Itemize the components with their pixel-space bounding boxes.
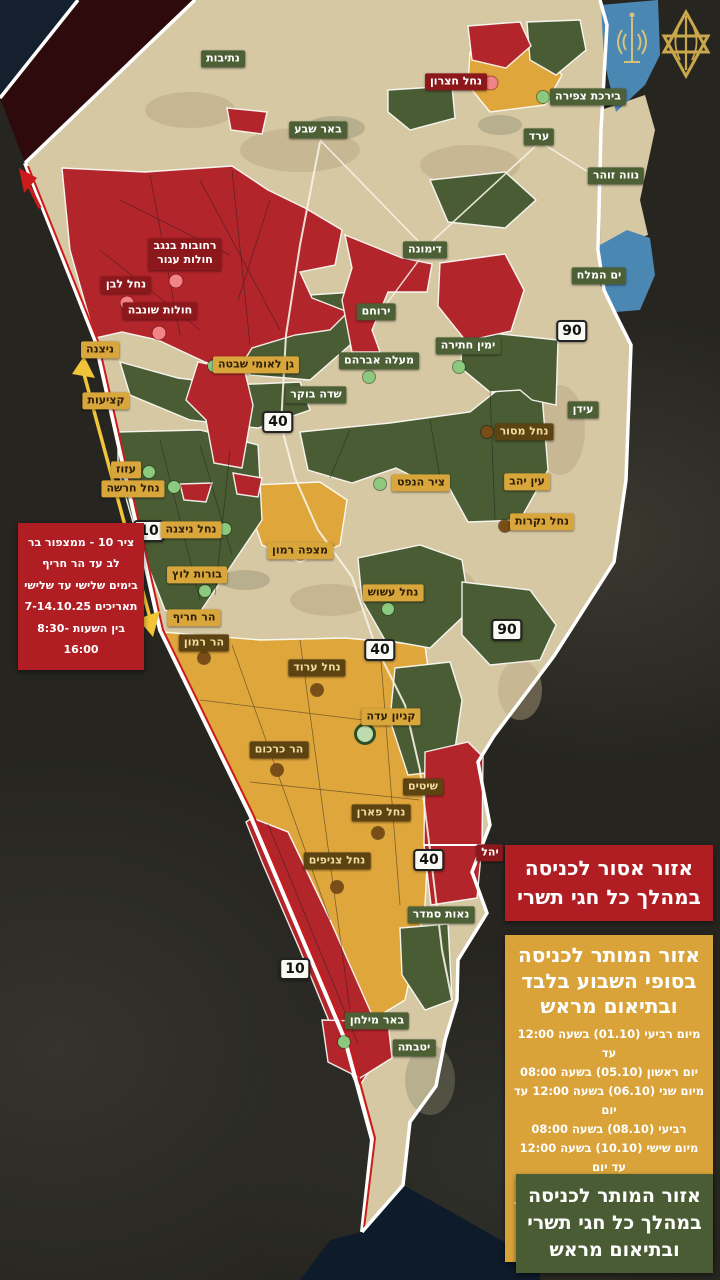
site-dot-green xyxy=(143,466,155,478)
label-ezuz: עזוז xyxy=(111,461,141,478)
label-nahal-lavan: נחל לבן xyxy=(101,276,151,293)
label-tzir-haneft: ציר הנפט xyxy=(392,474,450,491)
site-dot-brown xyxy=(311,684,323,696)
idf-logo-group xyxy=(606,4,714,86)
site-dot-green xyxy=(168,481,180,493)
label-kanyon-ada: קניון עדה xyxy=(361,708,420,725)
label-maale-avraham: מעלה אברהם xyxy=(339,352,419,369)
label-mitzpe-ramon: מצפה רמון xyxy=(267,542,333,559)
site-dot-pink xyxy=(153,327,166,340)
legend-weekend-line: מיום שני (06.10) בשעה 12:00 עד יום xyxy=(511,1082,707,1120)
label-shittim: שיטים xyxy=(403,778,443,795)
site-dot-brown xyxy=(271,764,283,776)
label-ein-yahav: עין יהב xyxy=(504,473,550,490)
red-sea xyxy=(300,1185,540,1280)
label-nahal-nitzana: נחל ניצנה xyxy=(161,521,222,538)
label-netivot: נתיבות xyxy=(201,50,245,67)
site-dot-green xyxy=(374,478,386,490)
legend-weekend-line: מיום שישי (10.10) בשעה 12:00 עד יום xyxy=(511,1139,707,1177)
label-har-harif: הר חריף xyxy=(168,609,221,626)
route-badge-90: 90 xyxy=(556,320,587,342)
notice-line: לב עד הר חריף xyxy=(22,553,140,574)
map-poster: 90 90 40 40 40 10 10 נתיבות באר שבע ערד … xyxy=(0,0,720,1280)
legend-allowed-title: אזור המותר לכניסה במהלך כל חגי תשרי ובתי… xyxy=(522,1183,707,1264)
label-shivta-national-park: גן לאומי שבטה xyxy=(213,356,299,373)
site-dot-green xyxy=(338,1036,350,1048)
label-beer-sheva: באר שבע xyxy=(289,121,347,138)
label-borot-lotz: בורות לוץ xyxy=(167,566,227,583)
label-har-karkom: הר כרכום xyxy=(250,741,309,758)
legend-allowed-box: אזור המותר לכניסה במהלך כל חגי תשרי ובתי… xyxy=(516,1174,713,1273)
label-rehovot-banegev-holot-agur: רחובות בנגב חולות עגור xyxy=(148,238,221,270)
site-dot-green xyxy=(382,603,394,615)
kanyon-ada-circle xyxy=(354,723,376,745)
route-badge-90: 90 xyxy=(491,619,522,641)
legend-weekend-line: יום ראשון (05.10) בשעה 08:00 xyxy=(511,1063,707,1082)
label-birkat-tzfira: בירכת צפירה xyxy=(550,88,626,105)
label-idan: עידן xyxy=(568,401,599,418)
label-holot-shunba: חולות שונבה xyxy=(123,302,197,319)
legend-weekend-line: רביעי (08.10) בשעה 08:00 xyxy=(511,1120,707,1139)
label-arad: ערד xyxy=(524,128,554,145)
route-badge-40: 40 xyxy=(413,849,444,871)
label-dead-sea: ים המלח xyxy=(572,267,626,284)
antenna-icon xyxy=(618,13,646,63)
site-dot-brown xyxy=(481,426,493,438)
route-badge-40: 40 xyxy=(364,639,395,661)
legend-weekend-line: מיום רביעי (01.10) בשעה 12:00 עד xyxy=(511,1025,707,1063)
label-nahal-nekarot: נחל נקרות xyxy=(510,513,574,530)
label-nahal-horsha: נחל חרשה xyxy=(101,480,164,497)
legend-weekend-title: אזור המותר לכניסה בסופי השבוע בלבד ובתיא… xyxy=(511,943,707,1020)
site-dot-brown xyxy=(331,881,343,893)
site-dot-brown xyxy=(198,652,210,664)
idf-emblem-icon xyxy=(664,12,708,76)
label-nahal-ashosh: נחל עשוש xyxy=(363,584,424,601)
label-neot-smadar: נאות סמדר xyxy=(408,906,475,923)
label-dimona: דימונה xyxy=(403,241,447,258)
label-yeruham: ירוחם xyxy=(357,303,396,320)
label-nahal-tznifim: נחל צניפים xyxy=(304,852,371,869)
label-yamin-hatira: ימין חתירה xyxy=(436,337,501,354)
label-nitzana: ניצנה xyxy=(81,341,119,358)
site-dot-green xyxy=(363,371,375,383)
label-nahal-hatzeron: נחל חצרון xyxy=(425,73,487,90)
notice-line: בין השעות 8:30-16:00 xyxy=(22,618,140,661)
route-badge-40: 40 xyxy=(262,411,293,433)
label-neve-zohar: נווה זוהר xyxy=(588,167,644,184)
label-beer-milhan: באר מילחן xyxy=(345,1012,409,1029)
site-dot-green xyxy=(453,361,465,373)
notice-line: בימים שלישי עד שלישי xyxy=(22,575,140,596)
site-dot-green xyxy=(537,91,549,103)
label-yotvata: יטבתה xyxy=(393,1039,436,1056)
label-har-ramon: הר רמון xyxy=(179,634,229,651)
route10-notice-box: ציר 10 - ממצפור בר לב עד הר חריף בימים ש… xyxy=(18,523,144,670)
label-sde-boker: שדה בוקר xyxy=(285,386,346,403)
route-badge-10: 10 xyxy=(279,958,310,980)
notice-line: ציר 10 - ממצפור בר xyxy=(22,532,140,553)
label-nahal-paran: נחל פארן xyxy=(352,804,411,821)
label-ketziot: קציעות xyxy=(82,392,129,409)
notice-line: תאריכים 7-14.10.25 xyxy=(22,596,140,617)
label-nahal-masor: נחל מסור xyxy=(495,423,554,440)
site-dot-green xyxy=(199,585,211,597)
site-dot-pink xyxy=(170,275,183,288)
site-dot-brown xyxy=(372,827,384,839)
label-nahal-arod: נחל ערוד xyxy=(288,659,345,676)
legend-forbidden-title: אזור אסור לכניסה במהלך כל חגי תשרי xyxy=(511,854,707,912)
label-yahel: יהל xyxy=(476,844,503,861)
legend-forbidden-box: אזור אסור לכניסה במהלך כל חגי תשרי xyxy=(505,845,713,921)
